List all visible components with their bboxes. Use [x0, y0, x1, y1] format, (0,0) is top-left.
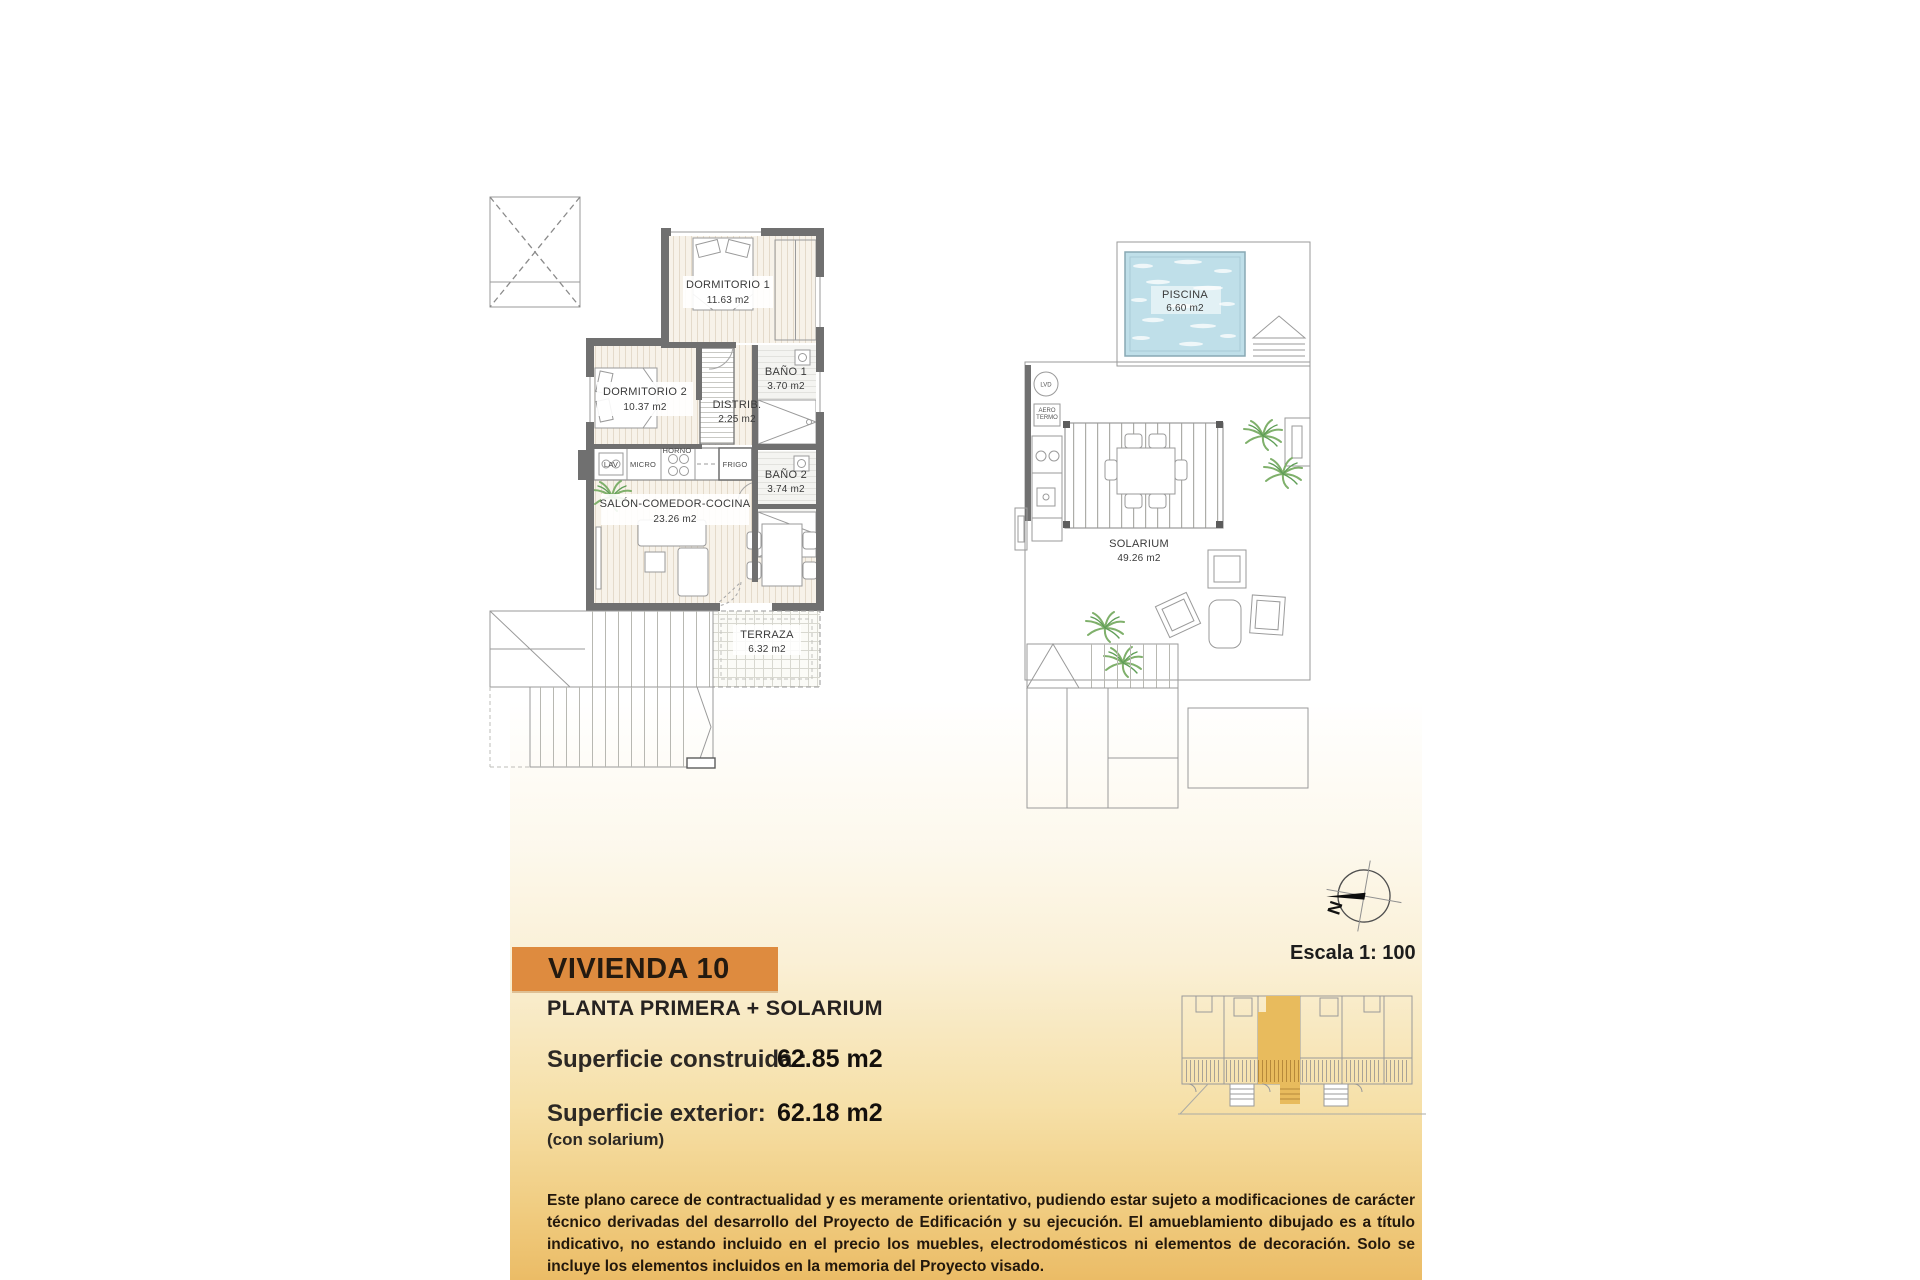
vivienda-title: VIVIENDA 10 [512, 947, 778, 991]
loungers [1155, 550, 1285, 648]
plan-sheet-page: DORMITORIO 1 11.63 m2 BAÑO 1 3.70 m2 DOR… [0, 0, 1920, 1280]
area-terraza: 6.32 m2 [748, 644, 786, 655]
ground-line [1178, 1084, 1426, 1114]
scale-label: Escala 1: 100 [1290, 942, 1416, 965]
superficie-construida-label: Superficie construida : [547, 1046, 807, 1074]
label-lavadora: LAV [604, 460, 618, 469]
con-solarium-note: (con solarium) [547, 1130, 664, 1150]
label-salon: SALÓN-COMEDOR-COCINA [600, 497, 751, 510]
label-bano-2: BAÑO 2 [765, 468, 807, 481]
side-door-leaf [1018, 516, 1024, 542]
utility-column: LVD AERO TERMO [1015, 372, 1062, 550]
solarium-left-wall [1025, 365, 1031, 521]
area-bano-1: 3.70 m2 [767, 381, 805, 392]
planta-subtitle: PLANTA PRIMERA + SOLARIUM [547, 996, 883, 1021]
label-solarium: SOLARIUM [1109, 538, 1169, 550]
area-solarium: 49.26 m2 [1117, 553, 1161, 564]
palm-plant-icon-1 [1244, 420, 1282, 450]
superficie-construida-value: 62.85 m2 [777, 1045, 883, 1074]
compass-icon: N [1318, 852, 1410, 944]
solarium-stairs [1027, 644, 1178, 808]
area-piscina: 6.60 m2 [1166, 303, 1204, 314]
vivienda-title-box: VIVIENDA 10 [512, 947, 778, 991]
area-dormitorio-2: 10.37 m2 [623, 402, 667, 413]
disclaimer-text: Este plano carece de contractualidad y e… [547, 1190, 1415, 1278]
key-plan [1178, 986, 1428, 1131]
label-microondas: MICRO [630, 460, 656, 469]
right-door [1285, 418, 1310, 466]
superficie-exterior-label: Superficie exterior: [547, 1100, 766, 1128]
stairs-lower [490, 687, 715, 768]
keyplan-hatch [1186, 1060, 1410, 1082]
area-bano-2: 3.74 m2 [767, 484, 805, 495]
label-termo: TERMO [1036, 415, 1058, 421]
label-horno: HORNO [663, 446, 692, 455]
lower-deck [1188, 708, 1308, 788]
palm-plant-icon-3 [1086, 612, 1124, 642]
label-terraza: TERRAZA [740, 629, 794, 641]
pergola [1063, 421, 1223, 528]
label-dormitorio-1: DORMITORIO 1 [686, 279, 770, 291]
label-distribuidor: DISTRIB. [713, 399, 762, 411]
label-lvd: LVD [1040, 383, 1052, 389]
area-dormitorio-1: 11.63 m2 [707, 295, 750, 306]
stairs-left [490, 611, 713, 687]
keyplan-stairs [1188, 1084, 1362, 1106]
floorplan-solarium: LVD AERO TERMO [1013, 208, 1313, 858]
palm-plant-icon-2 [1264, 458, 1302, 488]
compass-north-letter: N [1323, 899, 1346, 918]
superficie-exterior-value: 62.18 m2 [777, 1099, 883, 1128]
label-frigo: FRIGO [723, 460, 748, 469]
floorplan-first-floor: DORMITORIO 1 11.63 m2 BAÑO 1 3.70 m2 DOR… [475, 182, 835, 822]
label-piscina: PISCINA [1162, 289, 1208, 301]
label-dormitorio-2: DORMITORIO 2 [603, 386, 687, 398]
label-bano-1: BAÑO 1 [765, 365, 807, 378]
wardrobe-icon [700, 348, 734, 444]
outdoor-kitchen-icon [1032, 436, 1062, 541]
label-aero: AERO [1038, 408, 1055, 414]
roof-access-icon [1253, 316, 1305, 356]
void-box [490, 197, 580, 307]
area-distribuidor: 2.25 m2 [718, 414, 756, 425]
area-salon: 23.26 m2 [653, 514, 697, 525]
